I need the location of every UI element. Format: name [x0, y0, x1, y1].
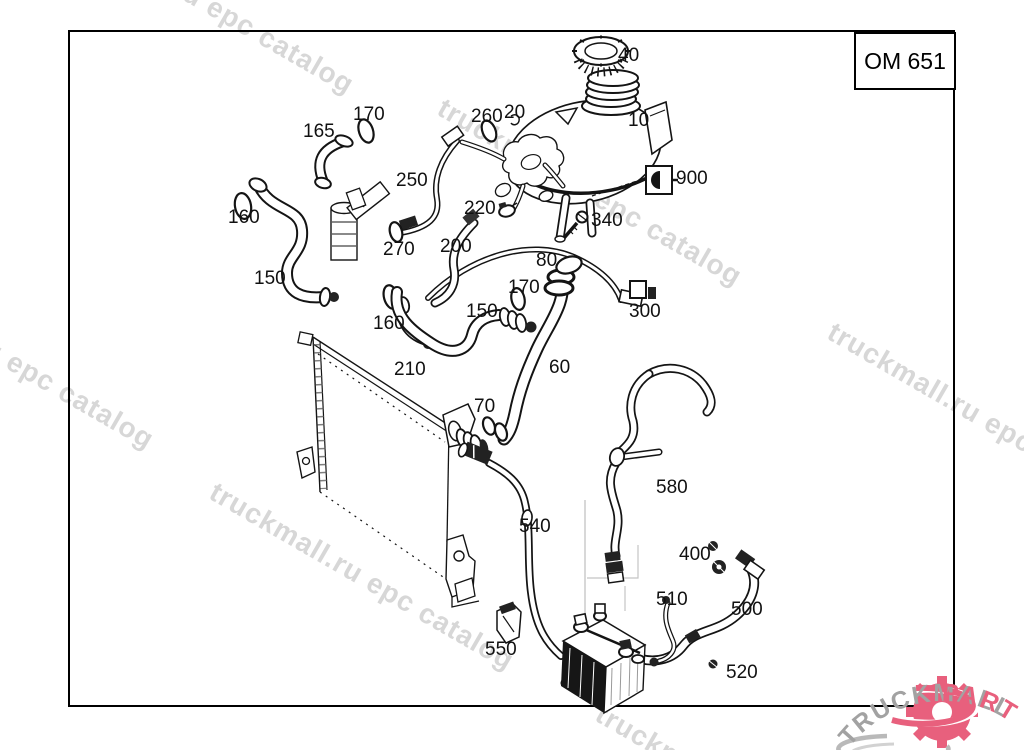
epc-diagram-page: truckmall.ru epc catalog truckmall.ru ep… — [0, 0, 1024, 750]
svg-text:PARTS: PARTS — [0, 0, 1023, 728]
brand-logo: TRUCKMALL PARTS — [0, 0, 1024, 750]
brand-logo-accent-text: PARTS — [0, 0, 1023, 728]
